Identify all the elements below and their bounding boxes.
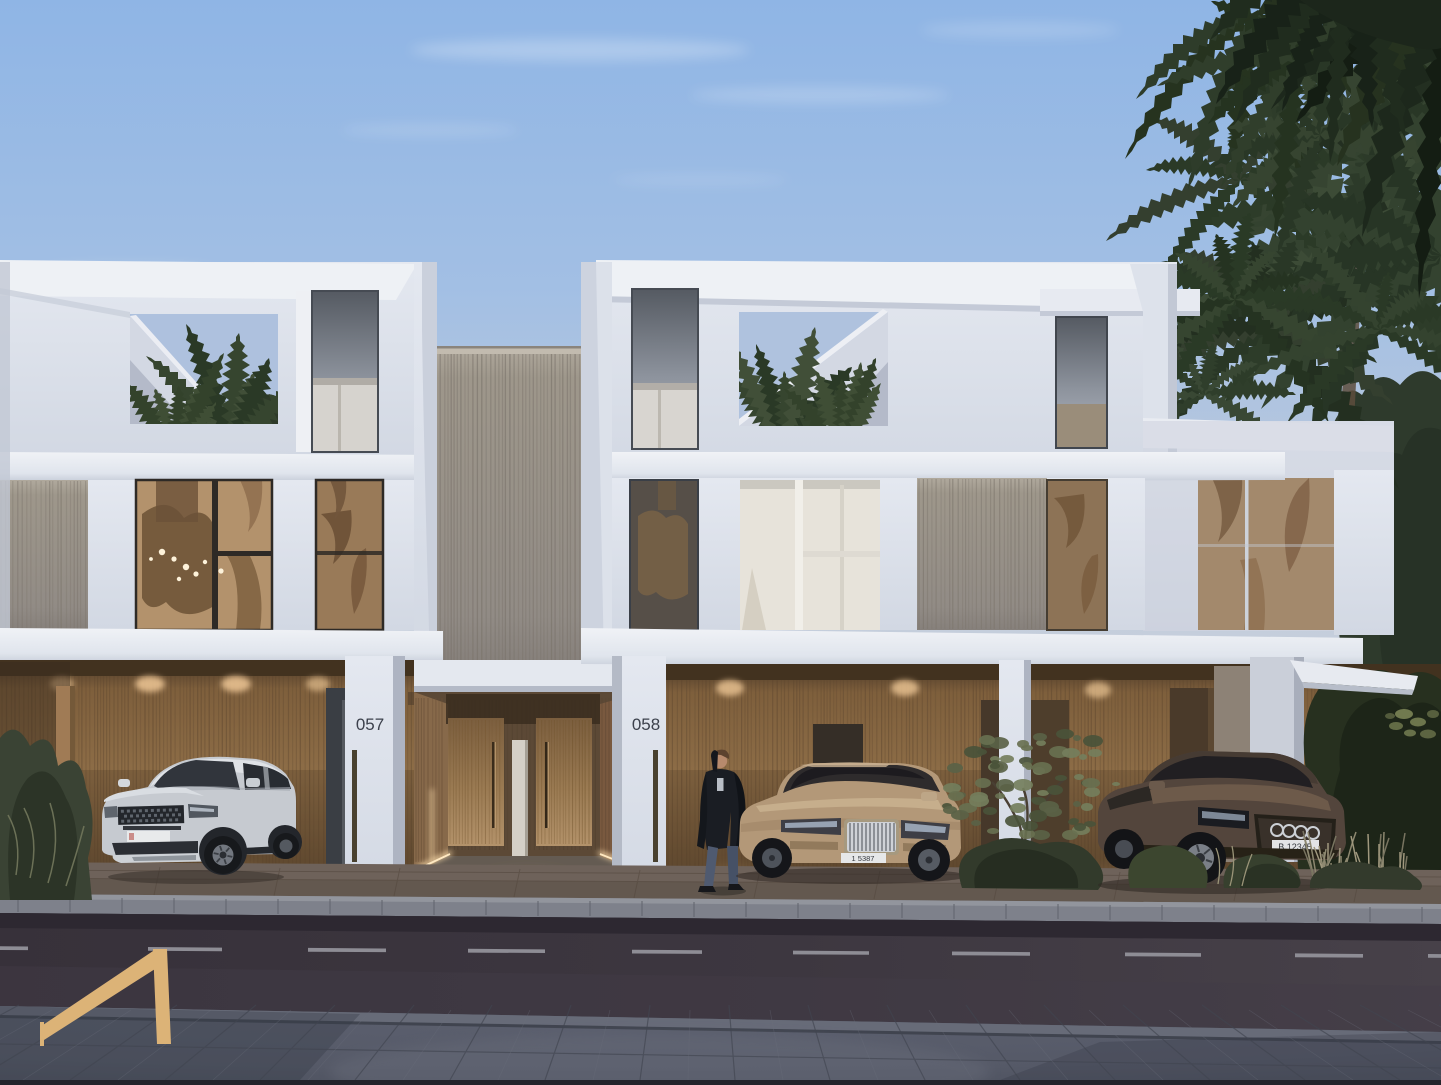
svg-text:1 5387: 1 5387 [852, 854, 875, 863]
svg-text:057: 057 [356, 715, 384, 734]
svg-text:058: 058 [632, 715, 660, 734]
